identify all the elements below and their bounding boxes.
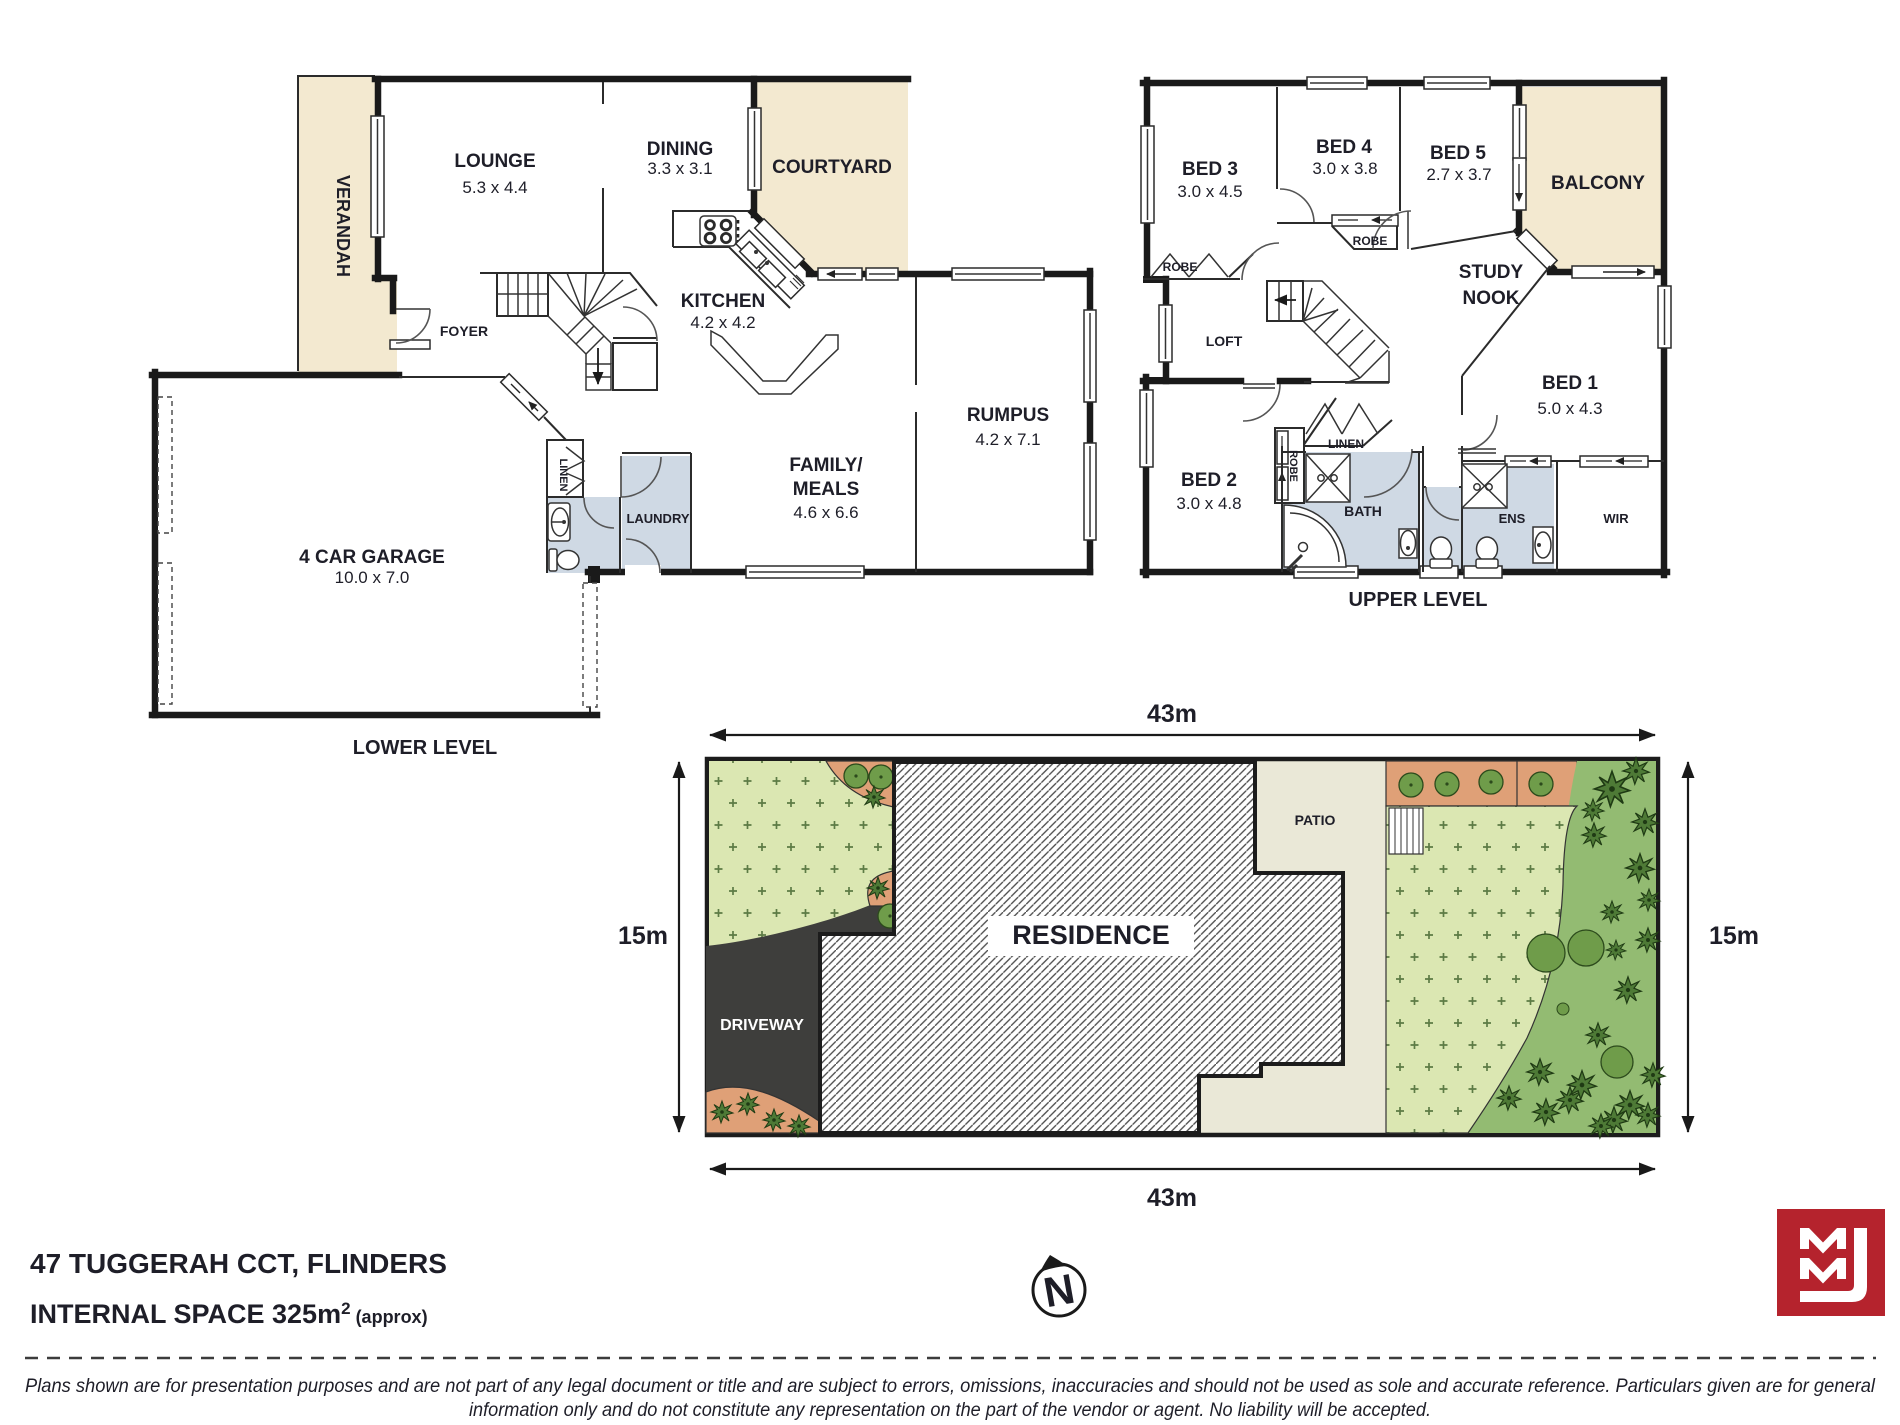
svg-text:5.3 x 4.4: 5.3 x 4.4 — [462, 178, 527, 197]
svg-text:ENS: ENS — [1499, 511, 1526, 526]
svg-text:43m: 43m — [1147, 700, 1197, 728]
svg-text:BED 2: BED 2 — [1181, 470, 1237, 491]
svg-text:VERANDAH: VERANDAH — [333, 175, 353, 277]
svg-text:Plans shown are for presentati: Plans shown are for presentation purpose… — [25, 1376, 1876, 1397]
svg-text:LOWER LEVEL: LOWER LEVEL — [353, 737, 497, 759]
svg-text:BED 4: BED 4 — [1316, 137, 1372, 158]
svg-text:BED 3: BED 3 — [1182, 159, 1238, 180]
svg-text:3.0 x 4.8: 3.0 x 4.8 — [1176, 494, 1241, 513]
svg-text:FAMILY/: FAMILY/ — [789, 455, 863, 476]
svg-text:ROBE: ROBE — [1353, 234, 1388, 248]
svg-text:43m: 43m — [1147, 1184, 1197, 1212]
svg-text:LINEN: LINEN — [1328, 437, 1364, 451]
svg-text:15m: 15m — [618, 922, 668, 950]
svg-text:3.3 x 3.1: 3.3 x 3.1 — [647, 159, 712, 178]
svg-text:2.7 x 3.7: 2.7 x 3.7 — [1426, 165, 1491, 184]
svg-text:RUMPUS: RUMPUS — [967, 405, 1049, 426]
svg-text:4.6 x 6.6: 4.6 x 6.6 — [793, 503, 858, 522]
svg-text:4.2 x 7.1: 4.2 x 7.1 — [975, 430, 1040, 449]
svg-text:PATIO: PATIO — [1295, 812, 1336, 828]
svg-text:LOUNGE: LOUNGE — [454, 151, 535, 172]
svg-text:WIR: WIR — [1603, 511, 1629, 526]
svg-text:4.2 x 4.2: 4.2 x 4.2 — [690, 313, 755, 332]
svg-text:BED 1: BED 1 — [1542, 373, 1598, 394]
svg-text:COURTYARD: COURTYARD — [772, 157, 892, 178]
svg-text:KITCHEN: KITCHEN — [681, 291, 765, 312]
svg-text:DINING: DINING — [647, 139, 714, 160]
svg-text:ROBE: ROBE — [1163, 260, 1198, 274]
svg-text:DRIVEWAY: DRIVEWAY — [720, 1017, 804, 1034]
svg-text:BALCONY: BALCONY — [1551, 173, 1645, 194]
svg-text:RESIDENCE: RESIDENCE — [1012, 920, 1170, 950]
svg-text:UPPER LEVEL: UPPER LEVEL — [1349, 589, 1488, 611]
svg-text:NOOK: NOOK — [1463, 288, 1520, 309]
svg-text:3.0 x 3.8: 3.0 x 3.8 — [1312, 159, 1377, 178]
svg-text:15m: 15m — [1709, 922, 1759, 950]
svg-text:STUDY: STUDY — [1459, 262, 1524, 283]
svg-text:ROBE: ROBE — [1287, 450, 1299, 482]
svg-text:3.0 x 4.5: 3.0 x 4.5 — [1177, 182, 1242, 201]
svg-text:LOFT: LOFT — [1206, 333, 1243, 349]
svg-text:LINEN: LINEN — [557, 459, 569, 492]
svg-text:47 TUGGERAH CCT, FLINDERS: 47 TUGGERAH CCT, FLINDERS — [30, 1248, 447, 1279]
svg-text:10.0 x 7.0: 10.0 x 7.0 — [335, 568, 410, 587]
svg-text:FOYER: FOYER — [440, 323, 488, 339]
svg-text:4 CAR GARAGE: 4 CAR GARAGE — [299, 547, 445, 568]
svg-text:BATH: BATH — [1344, 503, 1382, 519]
svg-text:BED 5: BED 5 — [1430, 143, 1486, 164]
svg-text:MEALS: MEALS — [793, 479, 860, 500]
svg-text:5.0 x 4.3: 5.0 x 4.3 — [1537, 399, 1602, 418]
svg-text:information only and do not co: information only and do not constitute a… — [469, 1400, 1431, 1421]
svg-text:LAUNDRY: LAUNDRY — [626, 511, 689, 526]
